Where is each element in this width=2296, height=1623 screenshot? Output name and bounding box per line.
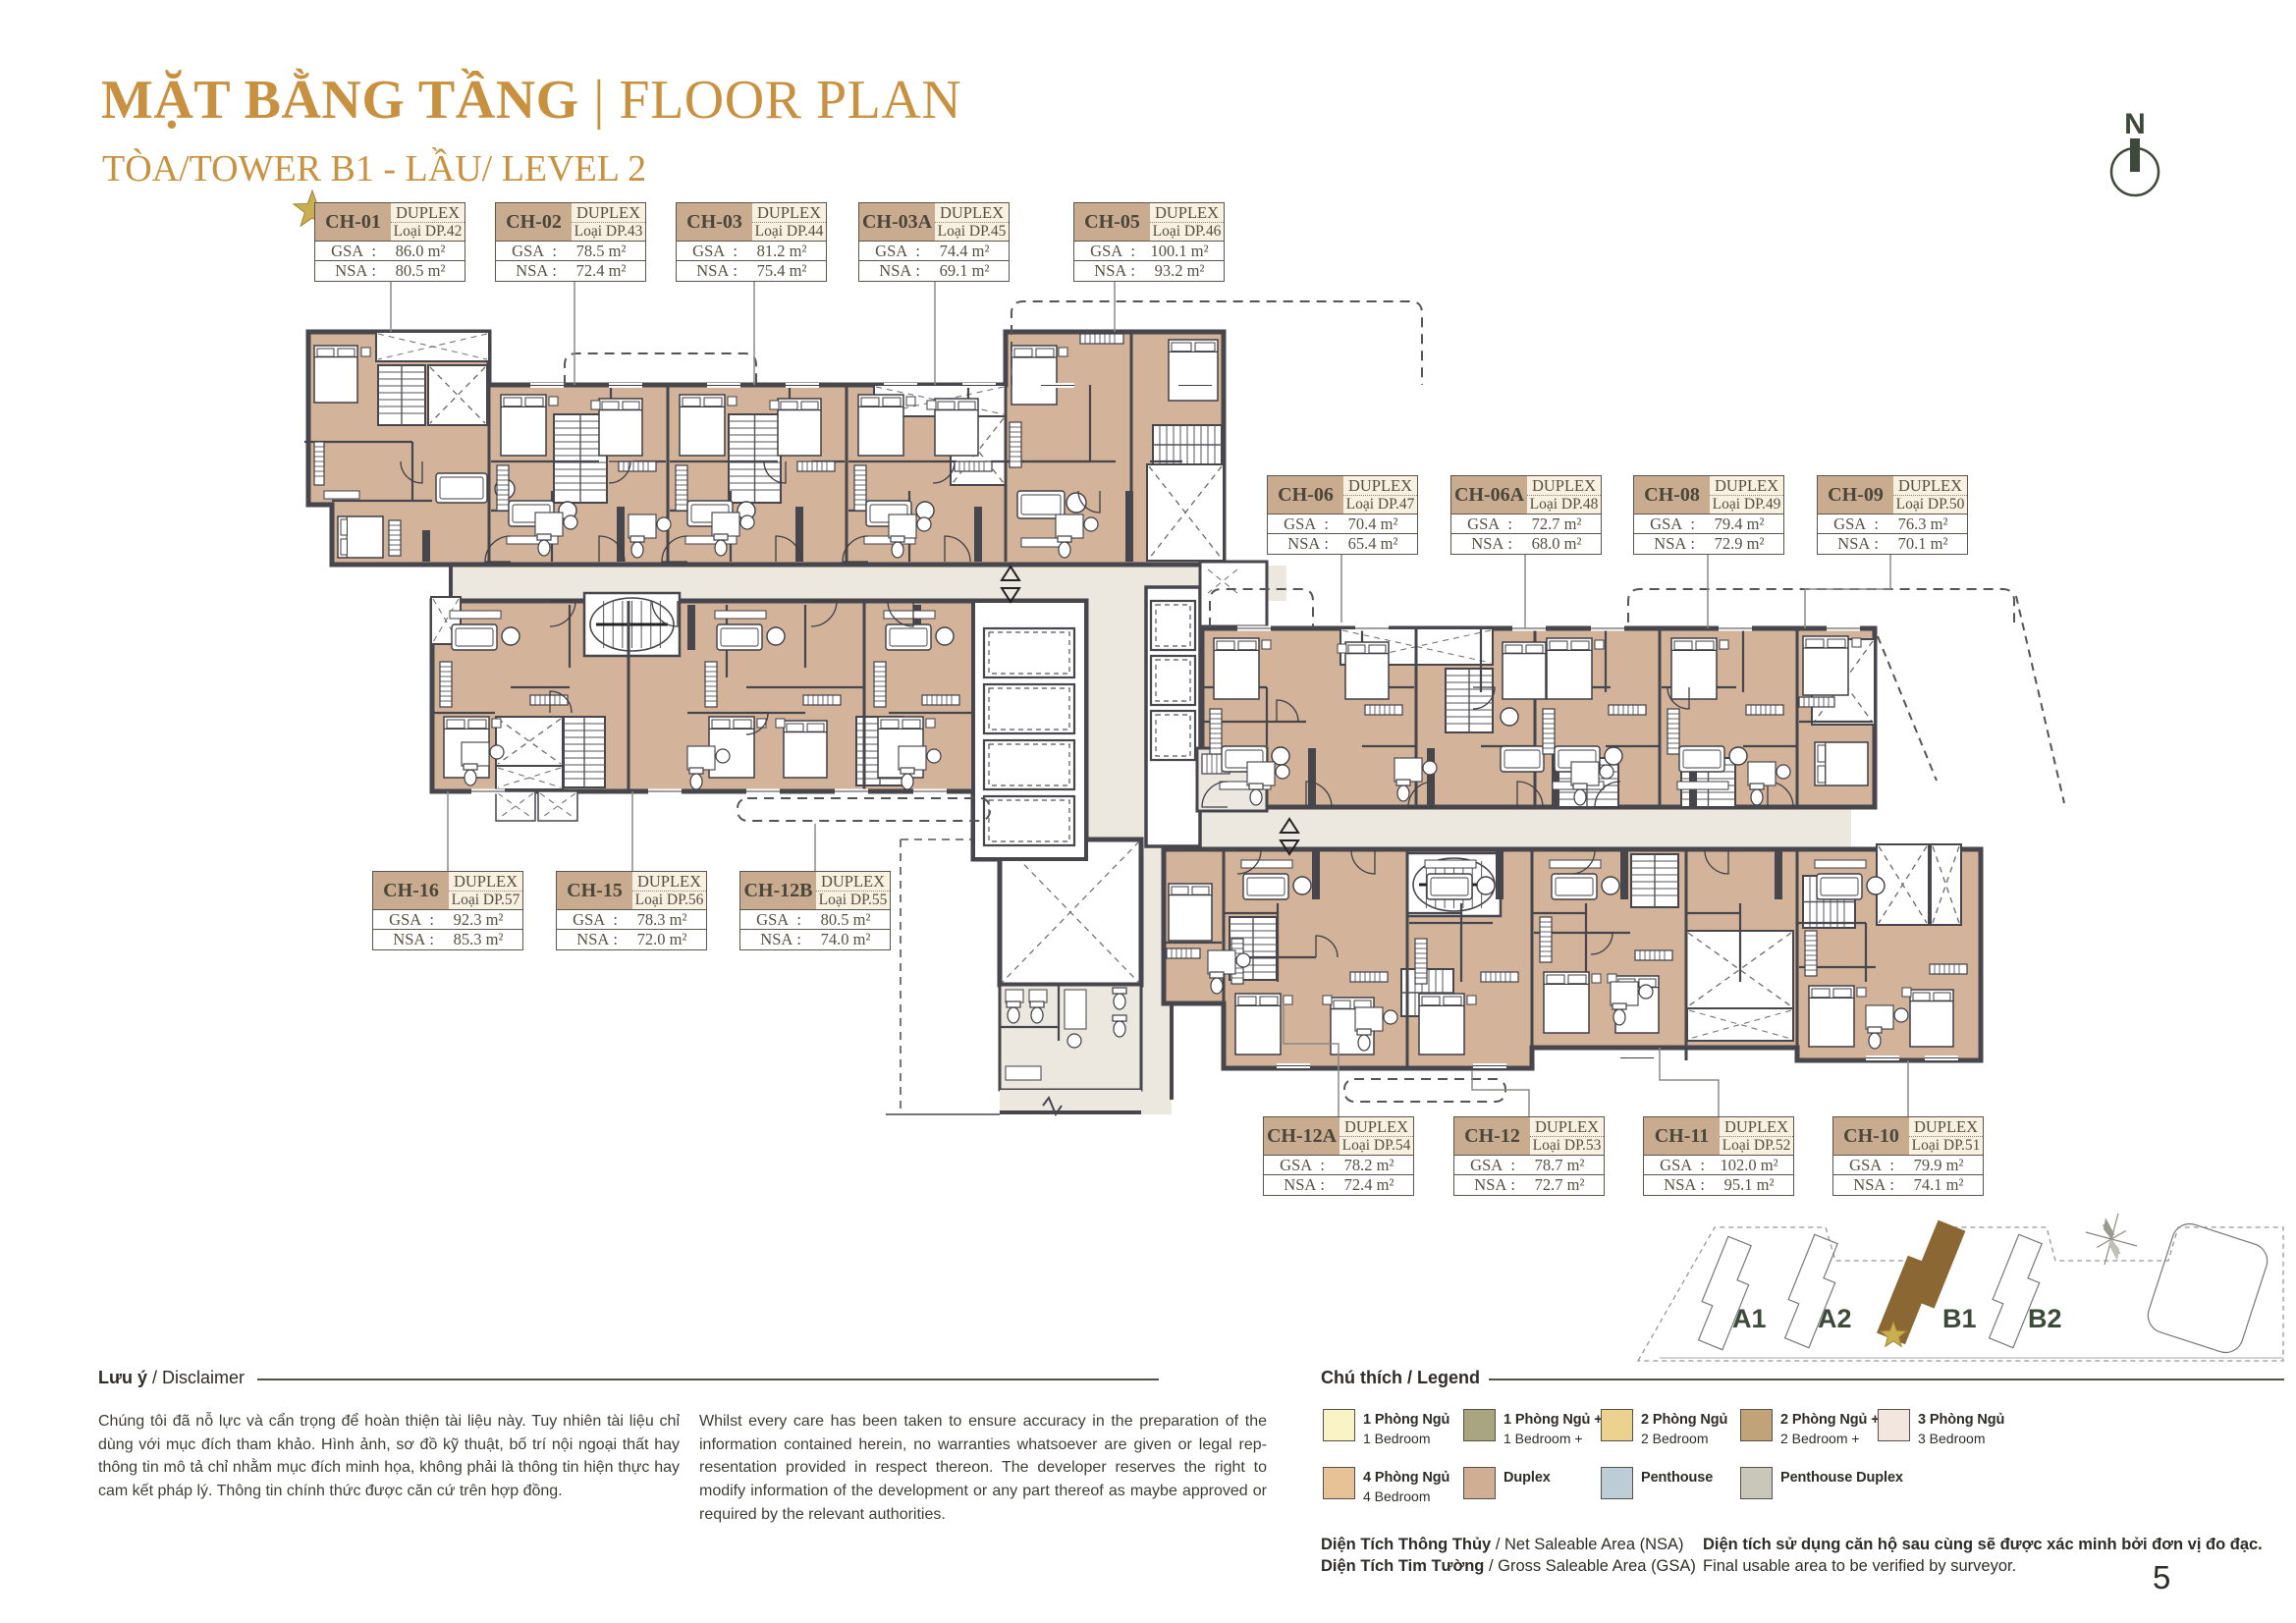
svg-text:A1: A1	[1732, 1304, 1767, 1333]
svg-text:B1: B1	[1942, 1304, 1977, 1333]
svg-text:B2: B2	[2028, 1304, 2062, 1333]
svg-text:N: N	[2124, 108, 2146, 140]
svg-text:A2: A2	[1818, 1304, 1852, 1333]
